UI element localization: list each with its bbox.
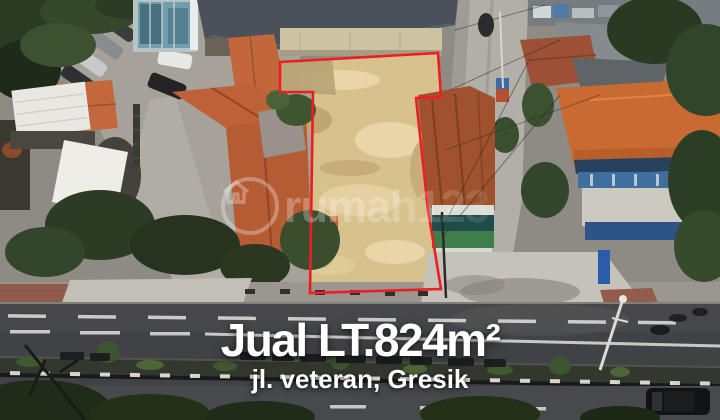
property-listing-photo: rumah123 Jual LT.824m² jl. veteran, Gres…	[0, 0, 720, 420]
back-wall	[280, 28, 442, 56]
motorcycle	[650, 325, 670, 335]
motorcycle	[669, 314, 687, 322]
blue-signboard	[598, 250, 610, 284]
aerial-photo	[0, 0, 720, 420]
motorcycle	[692, 308, 708, 316]
blue-glass-building	[133, 0, 198, 52]
